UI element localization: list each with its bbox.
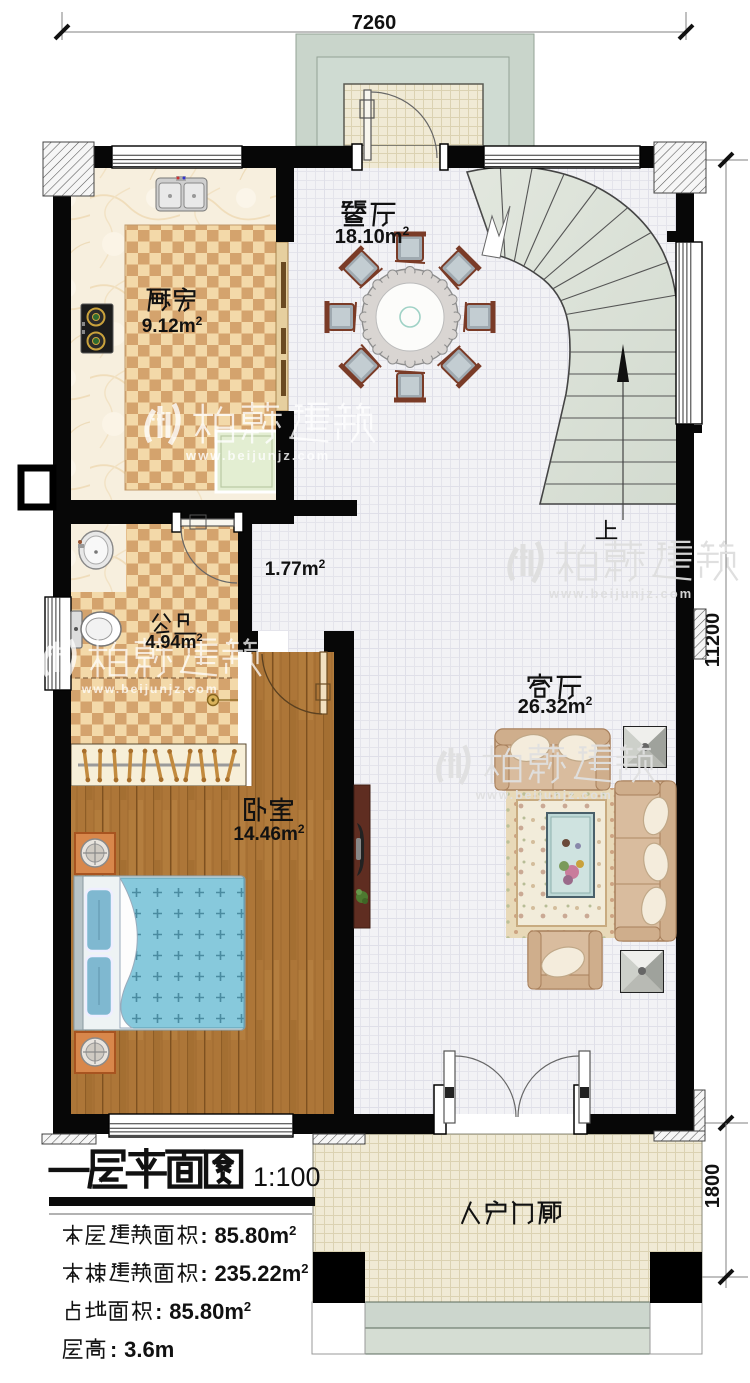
svg-text:www.beijunjz.com: www.beijunjz.com bbox=[548, 586, 693, 601]
svg-text:www.beijunjz.com: www.beijunjz.com bbox=[475, 788, 613, 802]
svg-text::: : bbox=[200, 1263, 207, 1286]
svg-text:9.12m2: 9.12m2 bbox=[142, 314, 203, 337]
svg-text:85.80m2: 85.80m2 bbox=[214, 1223, 296, 1248]
svg-text:85.80m2: 85.80m2 bbox=[169, 1299, 251, 1324]
svg-text:235.22m2: 235.22m2 bbox=[214, 1261, 308, 1286]
svg-text:18.10m2: 18.10m2 bbox=[335, 224, 410, 248]
svg-text:7260: 7260 bbox=[352, 12, 397, 34]
svg-text::: : bbox=[110, 1339, 117, 1362]
svg-text:26.32m2: 26.32m2 bbox=[518, 694, 593, 718]
svg-text:1800: 1800 bbox=[702, 1164, 724, 1209]
svg-text:www.beijunjz.com: www.beijunjz.com bbox=[81, 682, 219, 696]
svg-text::: : bbox=[155, 1301, 162, 1324]
svg-text:1:100: 1:100 bbox=[253, 1162, 321, 1192]
svg-text::: : bbox=[200, 1225, 207, 1248]
svg-text:3.6m: 3.6m bbox=[124, 1337, 174, 1362]
svg-text:www.beijunjz.com: www.beijunjz.com bbox=[185, 448, 330, 463]
svg-text:14.46m2: 14.46m2 bbox=[233, 822, 304, 845]
svg-text:1.77m2: 1.77m2 bbox=[265, 557, 326, 580]
svg-text:4.94m2: 4.94m2 bbox=[145, 632, 202, 652]
